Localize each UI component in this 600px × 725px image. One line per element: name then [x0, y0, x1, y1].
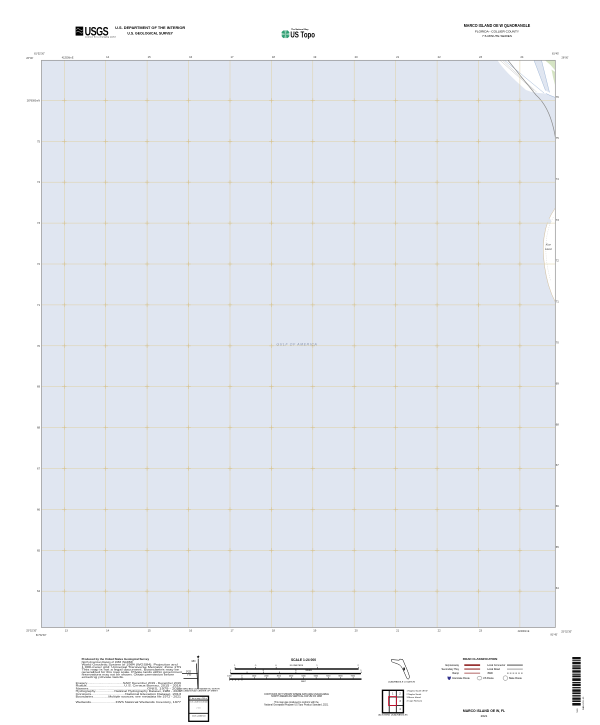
svg-text:ROAD CLASSIFICATION: ROAD CLASSIFICATION — [463, 657, 498, 661]
svg-text:Ramp: Ramp — [452, 672, 459, 675]
svg-text:MILES: MILES — [306, 670, 313, 672]
svg-text:KILOMETERS: KILOMETERS — [290, 665, 304, 667]
svg-text:67: 67 — [37, 467, 41, 471]
svg-text:MARCO ISLAND OE W QUADRANGLE: MARCO ISLAND OE W QUADRANGLE — [464, 23, 531, 28]
svg-text:7000: 7000 — [326, 675, 330, 677]
svg-text:7.5-MINUTE SERIES: 7.5-MINUTE SERIES — [482, 34, 512, 38]
svg-text:0°25': 0°25' — [186, 671, 192, 673]
svg-text:64: 64 — [37, 589, 41, 593]
svg-text:2 km: 2 km — [196, 707, 201, 709]
svg-text:23: 23 — [479, 628, 483, 632]
svg-text:US Route: US Route — [483, 677, 494, 680]
svg-text:67: 67 — [556, 463, 560, 467]
svg-text:Boundaries................Mult: Boundaries................Multiple sourc… — [76, 696, 182, 699]
svg-text:0: 0 — [241, 675, 242, 677]
svg-text:MN: MN — [192, 660, 196, 663]
svg-text:412500m E: 412500m E — [62, 56, 74, 59]
svg-text:72: 72 — [556, 259, 560, 263]
svg-text:65: 65 — [556, 545, 560, 549]
svg-text:1 cm = 0.24 km 1:24 000: 1 cm = 0.24 km 1:24 000 — [190, 701, 208, 703]
svg-text:2000: 2000 — [264, 675, 268, 677]
svg-text:76: 76 — [556, 95, 560, 99]
svg-text:1 Naples South OE W: 1 Naples South OE W — [407, 690, 429, 693]
svg-text:1000: 1000 — [227, 675, 231, 677]
svg-text:U.S. GEOLOGICAL SURVEY: U.S. GEOLOGICAL SURVEY — [127, 32, 173, 36]
svg-text:3000: 3000 — [277, 675, 281, 677]
svg-text:Expressway: Expressway — [446, 664, 460, 667]
svg-text:16: 16 — [189, 55, 193, 59]
svg-text:State Route: State Route — [509, 677, 523, 680]
svg-text:73: 73 — [556, 218, 560, 222]
svg-text:81°45': 81°45' — [552, 52, 560, 55]
svg-text:75: 75 — [37, 139, 41, 143]
svg-text:3 Marco Island: 3 Marco Island — [407, 697, 422, 699]
svg-text:68: 68 — [37, 426, 41, 430]
svg-text:20: 20 — [355, 628, 359, 632]
svg-text:1°52': 1°52' — [187, 675, 192, 677]
svg-text:17: 17 — [230, 628, 234, 632]
svg-text:22: 22 — [438, 55, 442, 59]
svg-text:69: 69 — [37, 385, 41, 389]
svg-text:Local Road: Local Road — [487, 668, 500, 671]
svg-text:19: 19 — [313, 55, 317, 59]
svg-text:Island: Island — [545, 247, 552, 251]
svg-text:74: 74 — [37, 180, 41, 184]
svg-text:81°52'30": 81°52'30" — [36, 634, 47, 637]
svg-text:14: 14 — [106, 628, 110, 632]
svg-text:70: 70 — [37, 344, 41, 348]
svg-text:66: 66 — [556, 504, 560, 508]
svg-text:This map was produced to confo: This map was produced to conform with th… — [274, 701, 319, 704]
svg-text:Secondary Hwy: Secondary Hwy — [441, 668, 459, 671]
svg-text:US Topo: US Topo — [290, 29, 315, 39]
svg-text:GULF OF AMERICA: GULF OF AMERICA — [277, 342, 318, 347]
svg-text:2876000m N: 2876000m N — [27, 100, 40, 103]
svg-text:23: 23 — [479, 55, 483, 59]
svg-text:73: 73 — [37, 221, 41, 225]
svg-text:U.S. DEPARTMENT OF THE INTERIO: U.S. DEPARTMENT OF THE INTERIOR — [115, 26, 186, 30]
svg-text:Interstate Route: Interstate Route — [452, 677, 470, 680]
svg-text:1000: 1000 — [252, 675, 256, 677]
svg-text:25°52'30": 25°52'30" — [561, 631, 572, 634]
svg-text:National Geospatial Program US: National Geospatial Program US Topo Prod… — [264, 704, 329, 707]
svg-text:66: 66 — [37, 507, 41, 511]
svg-text:FEET: FEET — [301, 681, 307, 683]
svg-text:68: 68 — [556, 422, 560, 426]
svg-text:18: 18 — [272, 628, 276, 632]
svg-text:MARCO ISLAND OE W, FL: MARCO ISLAND OE W, FL — [463, 709, 505, 713]
svg-text:14: 14 — [106, 55, 110, 59]
svg-text:9000: 9000 — [351, 675, 355, 677]
svg-text:1 inch = 2000 feet: 1 inch = 2000 feet — [192, 714, 206, 717]
svg-text:8000: 8000 — [338, 675, 342, 677]
svg-text:17: 17 — [230, 55, 234, 59]
svg-text:NORTH AMERICAN VERTICAL DATUM: NORTH AMERICAN VERTICAL DATUM OF 1988 — [271, 695, 322, 698]
svg-text:science for a changing world: science for a changing world — [85, 36, 116, 39]
svg-text:16: 16 — [189, 628, 193, 632]
svg-text:70: 70 — [556, 341, 560, 345]
svg-text:DECLINATION AT CENTER OF SHEET: DECLINATION AT CENTER OF SHEET — [179, 690, 218, 693]
svg-text:69: 69 — [556, 381, 560, 385]
svg-text:ISBN 978-1-60: ISBN 978-1-60 — [583, 696, 585, 710]
svg-text:81°52'30": 81°52'30" — [34, 52, 45, 55]
svg-text:2 Naples South: 2 Naples South — [407, 693, 422, 696]
svg-text:424000m E: 424000m E — [518, 630, 530, 633]
svg-text:26°00': 26°00' — [562, 56, 570, 59]
svg-text:15: 15 — [148, 55, 152, 59]
svg-text:4000: 4000 — [289, 675, 293, 677]
svg-text:71: 71 — [556, 300, 560, 304]
svg-text:74: 74 — [556, 177, 560, 181]
svg-text:2021: 2021 — [481, 714, 488, 718]
svg-text:19: 19 — [313, 628, 317, 632]
svg-text:18: 18 — [272, 55, 276, 59]
svg-text:Kice: Kice — [546, 243, 552, 247]
svg-text:FLORIDA - COLLIER COUNTY: FLORIDA - COLLIER COUNTY — [475, 29, 519, 33]
svg-text:Local Connector: Local Connector — [487, 664, 505, 667]
svg-text:6000: 6000 — [314, 675, 318, 677]
svg-text:5000: 5000 — [301, 675, 305, 677]
svg-text:25°52'30": 25°52'30" — [26, 630, 37, 633]
svg-text:72: 72 — [37, 262, 41, 266]
svg-text:1 km on map = 240 m: 1 km on map = 240 m — [190, 698, 207, 700]
svg-text:13: 13 — [65, 628, 69, 632]
svg-text:QUADRANGLE LOCATION: QUADRANGLE LOCATION — [388, 680, 415, 683]
svg-text:24: 24 — [520, 55, 524, 59]
svg-text:SCALE 1:24 000: SCALE 1:24 000 — [291, 658, 316, 662]
svg-text:NSN.: NSN. — [577, 708, 579, 713]
svg-text:75: 75 — [556, 136, 560, 140]
svg-text:4WD: 4WD — [487, 672, 493, 675]
svg-text:81°45': 81°45' — [550, 634, 558, 637]
svg-text:entering private lands.: entering private lands. — [82, 676, 125, 679]
svg-text:65: 65 — [37, 548, 41, 552]
svg-text:15: 15 — [148, 628, 152, 632]
svg-text:71: 71 — [37, 303, 41, 307]
svg-text:21: 21 — [396, 628, 400, 632]
svg-text:Wetlands......................: Wetlands........................FWS Nati… — [76, 701, 182, 704]
svg-text:22: 22 — [438, 628, 442, 632]
svg-text:ADJOINING QUADRANGLES: ADJOINING QUADRANGLES — [378, 713, 408, 716]
svg-text:64: 64 — [556, 586, 560, 590]
svg-text:4 Cape Romano: 4 Cape Romano — [407, 701, 423, 703]
svg-text:26°00': 26°00' — [26, 57, 34, 60]
svg-text:20: 20 — [355, 55, 359, 59]
svg-text:21: 21 — [396, 55, 400, 59]
